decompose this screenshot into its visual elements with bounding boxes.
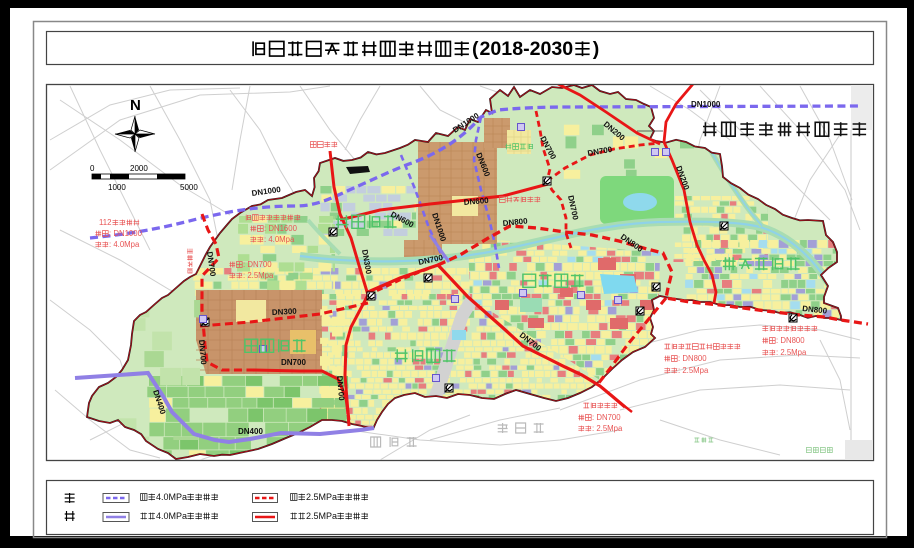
svg-text:4.0MPa: 4.0MPa xyxy=(156,511,187,521)
svg-text:: DN800: : DN800 xyxy=(678,354,707,363)
svg-text:: 2.5Mpa: : 2.5Mpa xyxy=(678,366,709,375)
svg-text:: DN800: : DN800 xyxy=(776,336,805,345)
svg-text:: DN700: : DN700 xyxy=(592,413,621,422)
svg-text:): ) xyxy=(593,38,600,60)
svg-text:: 2.5Mpa: : 2.5Mpa xyxy=(243,271,274,280)
svg-text:: DN1600: : DN1600 xyxy=(264,224,298,233)
svg-text:112: 112 xyxy=(99,218,111,227)
svg-text:: 2.5Mpa: : 2.5Mpa xyxy=(592,424,623,433)
svg-text:1000: 1000 xyxy=(108,183,126,192)
svg-text:: DN1000: : DN1000 xyxy=(109,229,143,238)
svg-text:(: ( xyxy=(472,38,479,60)
svg-text:: 4.0Mpa: : 4.0Mpa xyxy=(264,235,295,244)
svg-text:DN400: DN400 xyxy=(238,427,263,436)
svg-text:DN300: DN300 xyxy=(272,307,298,317)
svg-text:5000: 5000 xyxy=(180,183,198,192)
svg-text:0: 0 xyxy=(90,164,95,173)
svg-text:2000: 2000 xyxy=(130,164,148,173)
svg-text:DN700: DN700 xyxy=(281,358,306,367)
svg-text:2.5MPa: 2.5MPa xyxy=(306,492,337,502)
svg-text:4.0MPa: 4.0MPa xyxy=(156,492,187,502)
svg-text:DN1000: DN1000 xyxy=(691,100,721,109)
svg-text:N: N xyxy=(130,97,141,114)
svg-text:2018-2030: 2018-2030 xyxy=(480,38,574,60)
svg-text:: 2.5Mpa: : 2.5Mpa xyxy=(776,348,807,357)
svg-text:: DN700: : DN700 xyxy=(243,260,272,269)
svg-text:2.5MPa: 2.5MPa xyxy=(306,511,337,521)
svg-text:: 4.0Mpa: : 4.0Mpa xyxy=(109,240,140,249)
